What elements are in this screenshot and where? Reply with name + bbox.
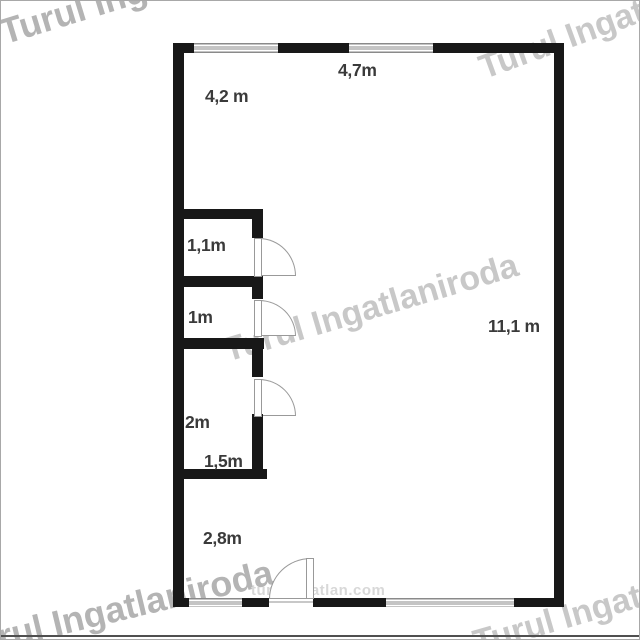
entrance-door-threshold xyxy=(268,601,313,603)
dimension-label-upper-room-width: 4,2 m xyxy=(205,86,248,107)
outer-wall-top-segment-3 xyxy=(433,43,564,53)
image-bottom-border xyxy=(1,635,639,637)
partition-wall-stub-1 xyxy=(252,209,263,238)
window-symbol-top-left xyxy=(194,43,278,53)
outer-wall-top-segment-2 xyxy=(278,43,349,53)
outer-wall-bottom-segment-1 xyxy=(173,598,190,607)
outer-wall-bottom-segment-3 xyxy=(313,598,387,607)
window-symbol-bottom-left xyxy=(189,598,242,607)
door-swing-icon-storage-middle xyxy=(259,300,296,336)
partition-wall-stub-2 xyxy=(252,276,263,299)
dimension-label-main-room-length: 11,1 m xyxy=(488,316,540,337)
dimension-label-storage-middle: 1m xyxy=(188,307,213,328)
outer-wall-right xyxy=(554,43,564,607)
door-leaf-storage-bottom xyxy=(254,379,262,417)
door-leaf-storage-middle xyxy=(254,300,262,337)
door-leaf-storage-top xyxy=(254,238,262,277)
partition-wall-storage-mid-1 xyxy=(173,276,263,287)
outer-wall-bottom-segment-2 xyxy=(242,598,269,607)
door-leaf-entrance xyxy=(306,558,314,599)
partition-wall-storage-top xyxy=(173,209,263,219)
door-swing-icon-storage-top xyxy=(259,238,296,276)
dimension-label-lower-hall-width: 2,8m xyxy=(203,528,242,549)
dimension-label-storage-bottom-width: 1,5m xyxy=(204,451,243,472)
dimension-label-top-window: 4,7m xyxy=(338,60,377,81)
dimension-label-storage-bottom: 2m xyxy=(185,412,210,433)
outer-wall-left xyxy=(173,43,184,607)
window-symbol-bottom-right xyxy=(386,598,514,607)
outer-wall-top-segment-1 xyxy=(173,43,194,53)
window-symbol-top-right xyxy=(349,43,433,53)
floorplan-canvas: Turul Ingatlaniroda Turul Ingatlaniroda … xyxy=(0,0,640,640)
door-swing-icon-storage-bottom xyxy=(259,379,296,416)
dimension-label-storage-top: 1,1m xyxy=(187,235,226,256)
partition-wall-stub-3 xyxy=(252,338,263,377)
partition-wall-stub-4 xyxy=(252,414,263,479)
watermark-brand-bottom-left: Turul Ingatlaniroda xyxy=(0,552,277,640)
door-swing-icon-entrance xyxy=(269,558,311,599)
outer-wall-bottom-segment-4 xyxy=(514,598,564,607)
partition-wall-storage-mid-2 xyxy=(173,338,264,349)
